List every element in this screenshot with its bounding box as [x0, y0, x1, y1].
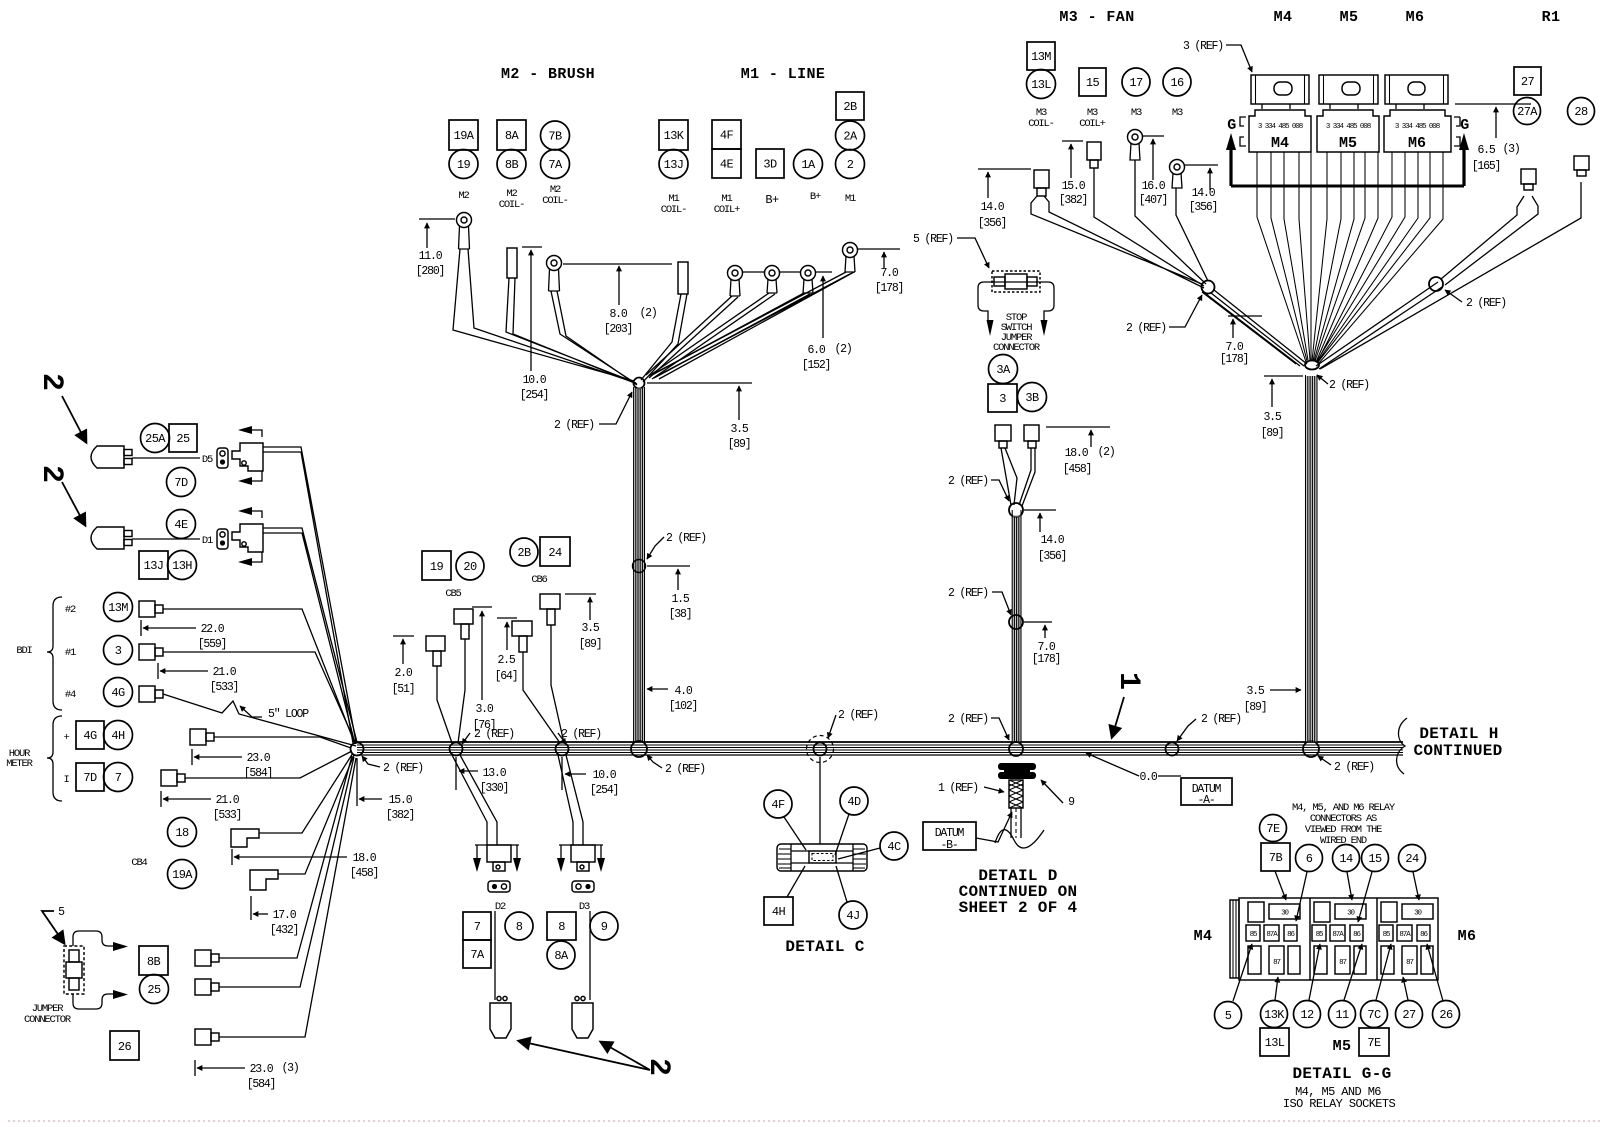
- svg-text:11.0: 11.0: [419, 250, 443, 263]
- svg-text:8: 8: [558, 920, 565, 934]
- svg-text:15: 15: [1086, 76, 1100, 90]
- svg-text:3 334 485 008: 3 334 485 008: [1258, 123, 1303, 131]
- svg-text:[102]: [102]: [669, 700, 698, 713]
- svg-text:2 (REF): 2 (REF): [1329, 379, 1369, 392]
- svg-text:7C: 7C: [1367, 1008, 1381, 1022]
- svg-text:21.0: 21.0: [213, 666, 237, 679]
- svg-text:CB6: CB6: [531, 574, 547, 586]
- svg-text:24: 24: [548, 546, 562, 560]
- svg-text:4G: 4G: [83, 729, 97, 743]
- svg-text:M4: M4: [1194, 928, 1213, 945]
- svg-text:#4: #4: [65, 689, 76, 701]
- svg-text:B+: B+: [810, 191, 821, 203]
- svg-text:M2: M2: [458, 190, 469, 202]
- svg-text:CONTINUED: CONTINUED: [1413, 742, 1502, 760]
- svg-text:2A: 2A: [843, 130, 858, 144]
- svg-text:15: 15: [1368, 852, 1382, 866]
- svg-text:M6: M6: [1406, 9, 1425, 26]
- svg-text:2: 2: [34, 465, 68, 483]
- svg-text:2 (REF): 2 (REF): [474, 728, 514, 741]
- svg-text:13L: 13L: [1031, 78, 1051, 92]
- svg-text:2 (REF): 2 (REF): [948, 475, 988, 488]
- svg-text:3 334 485 008: 3 334 485 008: [1395, 123, 1440, 131]
- svg-text:[254]: [254]: [590, 784, 619, 797]
- svg-text:[165]: [165]: [1472, 160, 1501, 173]
- svg-text:7: 7: [474, 920, 481, 934]
- svg-text:COIL-: COIL-: [661, 204, 687, 216]
- svg-text:10.0: 10.0: [523, 374, 547, 387]
- svg-text:3.5: 3.5: [1246, 685, 1264, 698]
- svg-text:SHEET 2 OF 4: SHEET 2 OF 4: [959, 899, 1078, 917]
- svg-text:5: 5: [1225, 1009, 1232, 1023]
- svg-text:25: 25: [176, 432, 190, 446]
- svg-text:20: 20: [463, 560, 477, 574]
- svg-text:4H: 4H: [772, 905, 786, 919]
- svg-text:DETAIL C: DETAIL C: [785, 938, 864, 956]
- svg-text:16.0: 16.0: [1142, 180, 1166, 193]
- svg-text:4G: 4G: [111, 686, 125, 700]
- svg-text:2: 2: [34, 373, 68, 391]
- svg-text:(3): (3): [1502, 143, 1519, 156]
- svg-text:12: 12: [1300, 1008, 1314, 1022]
- svg-text:17: 17: [1129, 76, 1143, 90]
- svg-text:COIL-: COIL-: [499, 199, 525, 211]
- svg-text:[356]: [356]: [1189, 201, 1218, 214]
- svg-text:13J: 13J: [144, 559, 164, 573]
- svg-text:8A: 8A: [554, 949, 569, 963]
- svg-text:4C: 4C: [887, 840, 901, 854]
- svg-text:[51]: [51]: [392, 683, 415, 696]
- svg-text:-A-: -A-: [1197, 794, 1214, 807]
- svg-text:15.0: 15.0: [389, 794, 413, 807]
- svg-text:2 (REF): 2 (REF): [554, 419, 594, 432]
- svg-text:M5: M5: [1339, 135, 1357, 152]
- svg-text:7D: 7D: [83, 771, 97, 785]
- svg-text:2: 2: [847, 158, 854, 172]
- svg-text:13J: 13J: [664, 158, 684, 172]
- svg-text:4F: 4F: [771, 798, 785, 812]
- svg-text:2 (REF): 2 (REF): [1466, 297, 1506, 310]
- svg-text:[458]: [458]: [1063, 463, 1092, 476]
- svg-text:13H: 13H: [172, 559, 192, 573]
- svg-text:3.5: 3.5: [730, 423, 748, 436]
- svg-text:[254]: [254]: [520, 389, 549, 402]
- svg-text:M4: M4: [1271, 135, 1289, 152]
- svg-text:M1 - LINE: M1 - LINE: [741, 66, 826, 83]
- svg-text:M4: M4: [1274, 9, 1293, 26]
- svg-text:3: 3: [999, 392, 1006, 406]
- svg-text:D1: D1: [202, 535, 213, 547]
- svg-text:I: I: [63, 774, 69, 786]
- svg-text:8B: 8B: [147, 955, 161, 969]
- svg-text:+: +: [63, 732, 69, 744]
- svg-text:DETAIL G-G: DETAIL G-G: [1292, 1065, 1391, 1083]
- svg-text:6.0: 6.0: [807, 344, 825, 357]
- svg-text:22.0: 22.0: [201, 623, 225, 636]
- svg-text:2 (REF): 2 (REF): [1201, 713, 1241, 726]
- svg-text:3D: 3D: [763, 158, 777, 172]
- svg-text:87: 87: [1339, 959, 1346, 967]
- svg-text:19: 19: [430, 560, 444, 574]
- svg-text:8A: 8A: [505, 129, 520, 143]
- svg-text:26: 26: [118, 1040, 132, 1054]
- svg-text:[356]: [356]: [978, 217, 1007, 230]
- svg-text:3B: 3B: [1025, 391, 1039, 405]
- svg-text:23.0: 23.0: [250, 1063, 274, 1076]
- svg-text:COIL+: COIL+: [714, 204, 740, 216]
- svg-text:2 (REF): 2 (REF): [948, 587, 988, 600]
- svg-text:19: 19: [457, 158, 471, 172]
- svg-text:28: 28: [1574, 105, 1588, 119]
- svg-text:(2): (2): [639, 307, 656, 320]
- svg-text:[203]: [203]: [604, 323, 633, 336]
- svg-text:3.5: 3.5: [1263, 411, 1281, 424]
- svg-text:D3: D3: [579, 901, 590, 913]
- svg-text:87: 87: [1406, 959, 1413, 967]
- svg-text:8B: 8B: [505, 158, 519, 172]
- svg-text:4.0: 4.0: [674, 685, 692, 698]
- svg-text:2 (REF): 2 (REF): [561, 728, 601, 741]
- svg-text:4D: 4D: [847, 795, 861, 809]
- svg-text:COIL-: COIL-: [1028, 118, 1054, 130]
- svg-text:4J: 4J: [846, 909, 859, 923]
- svg-text:CB5: CB5: [445, 588, 461, 600]
- svg-text:M3 - FAN: M3 - FAN: [1059, 9, 1134, 26]
- svg-text:1 (REF): 1 (REF): [938, 782, 978, 795]
- svg-text:1: 1: [1111, 672, 1145, 690]
- svg-text:D5: D5: [202, 454, 213, 466]
- svg-text:3A: 3A: [996, 363, 1011, 377]
- svg-text:M6: M6: [1458, 928, 1477, 945]
- svg-text:7B: 7B: [548, 130, 562, 144]
- svg-text:CB4: CB4: [131, 857, 147, 869]
- svg-text:19A: 19A: [454, 129, 475, 143]
- svg-text:18.0: 18.0: [353, 852, 377, 865]
- svg-text:M5: M5: [1333, 1038, 1352, 1055]
- svg-text:6: 6: [1306, 852, 1313, 866]
- svg-text:M2 - BRUSH: M2 - BRUSH: [501, 66, 595, 83]
- svg-text:3 334 485 008: 3 334 485 008: [1326, 123, 1371, 131]
- svg-text:ISO RELAY SOCKETS: ISO RELAY SOCKETS: [1283, 1097, 1396, 1111]
- svg-text:M3: M3: [1131, 107, 1142, 119]
- svg-text:[458]: [458]: [350, 867, 379, 880]
- svg-text:D2: D2: [495, 901, 506, 913]
- svg-text:27A: 27A: [1517, 105, 1538, 119]
- svg-text:17.0: 17.0: [273, 909, 297, 922]
- svg-text:[432]: [432]: [270, 924, 299, 937]
- svg-text:13K: 13K: [664, 129, 685, 143]
- svg-text:[89]: [89]: [1261, 427, 1284, 440]
- svg-text:4E: 4E: [174, 518, 188, 532]
- svg-text:8: 8: [516, 920, 523, 934]
- svg-text:[280]: [280]: [416, 265, 445, 278]
- svg-text:7A: 7A: [470, 948, 485, 962]
- svg-text:(3): (3): [281, 1062, 298, 1075]
- svg-text:7D: 7D: [174, 476, 188, 490]
- svg-text:2 (REF): 2 (REF): [383, 762, 423, 775]
- svg-text:87: 87: [1273, 959, 1280, 967]
- svg-text:3: 3: [115, 644, 122, 658]
- svg-text:10.0: 10.0: [593, 769, 617, 782]
- svg-text:(2): (2): [1097, 446, 1114, 459]
- svg-text:14.0: 14.0: [1192, 187, 1216, 200]
- svg-text:4F: 4F: [720, 129, 734, 143]
- svg-text:13M: 13M: [1031, 50, 1051, 64]
- svg-text:27: 27: [1521, 75, 1535, 89]
- svg-text:DETAIL H: DETAIL H: [1419, 725, 1498, 743]
- svg-text:87A: 87A: [1399, 931, 1411, 939]
- svg-text:B+: B+: [765, 193, 779, 207]
- svg-text:7E: 7E: [1266, 822, 1280, 836]
- svg-text:[533]: [533]: [210, 681, 239, 694]
- svg-text:[152]: [152]: [802, 359, 831, 372]
- svg-text:26: 26: [1439, 1008, 1453, 1022]
- svg-text:CONNECTOR: CONNECTOR: [24, 1014, 72, 1026]
- svg-text:2 (REF): 2 (REF): [948, 713, 988, 726]
- svg-text:#1: #1: [65, 647, 76, 659]
- svg-text:M6: M6: [1408, 135, 1426, 152]
- svg-text:[89]: [89]: [579, 638, 602, 651]
- svg-text:13K: 13K: [1264, 1008, 1285, 1022]
- svg-text:25: 25: [147, 983, 161, 997]
- svg-text:CONNECTOR: CONNECTOR: [993, 342, 1041, 354]
- svg-text:1A: 1A: [801, 158, 816, 172]
- svg-text:#2: #2: [65, 604, 76, 616]
- svg-text:2 (REF): 2 (REF): [1126, 322, 1166, 335]
- svg-text:(2): (2): [834, 343, 851, 356]
- svg-text:18.0: 18.0: [1065, 447, 1089, 460]
- svg-text:14.0: 14.0: [1041, 534, 1065, 547]
- svg-text:2.5: 2.5: [497, 654, 515, 667]
- svg-text:2.0: 2.0: [394, 667, 412, 680]
- svg-text:COIL+: COIL+: [1079, 118, 1105, 130]
- svg-text:2 (REF): 2 (REF): [1334, 761, 1374, 774]
- svg-text:18: 18: [175, 826, 189, 840]
- svg-text:27: 27: [1402, 1008, 1416, 1022]
- svg-text:7: 7: [115, 771, 122, 785]
- svg-text:M3: M3: [1172, 107, 1183, 119]
- svg-text:[559]: [559]: [198, 638, 227, 651]
- svg-text:G: G: [1460, 117, 1469, 134]
- svg-text:[382]: [382]: [386, 809, 415, 822]
- svg-text:1.5: 1.5: [671, 593, 689, 606]
- svg-text:87A: 87A: [1266, 931, 1278, 939]
- svg-text:BDI: BDI: [16, 645, 32, 657]
- svg-text:13L: 13L: [1265, 1036, 1285, 1050]
- svg-text:[64]: [64]: [495, 670, 518, 683]
- svg-text:[178]: [178]: [1032, 653, 1061, 666]
- svg-text:7A: 7A: [548, 158, 563, 172]
- svg-text:2 (REF): 2 (REF): [666, 532, 706, 545]
- svg-text:7.0: 7.0: [880, 267, 898, 280]
- svg-text:[584]: [584]: [247, 1078, 276, 1091]
- svg-text:14.0: 14.0: [981, 201, 1005, 214]
- svg-text:4E: 4E: [720, 158, 734, 172]
- svg-text:25A: 25A: [145, 432, 166, 446]
- svg-text:G: G: [1227, 117, 1236, 134]
- svg-text:7B: 7B: [1269, 851, 1283, 865]
- svg-text:[89]: [89]: [1244, 701, 1267, 714]
- svg-text:87A: 87A: [1332, 931, 1344, 939]
- svg-text:M5: M5: [1340, 9, 1359, 26]
- svg-text:3.0: 3.0: [475, 703, 493, 716]
- svg-text:[382]: [382]: [1059, 194, 1088, 207]
- svg-text:11: 11: [1335, 1008, 1349, 1022]
- svg-text:5 (REF): 5 (REF): [913, 233, 953, 246]
- svg-text:-B-: -B-: [940, 839, 957, 852]
- svg-text:19A: 19A: [172, 868, 193, 882]
- svg-text:16: 16: [1170, 76, 1184, 90]
- svg-text:M1: M1: [845, 193, 856, 205]
- svg-text:15.0: 15.0: [1062, 180, 1086, 193]
- svg-text:2 (REF): 2 (REF): [665, 763, 705, 776]
- svg-text:[533]: [533]: [213, 809, 242, 822]
- svg-text:2 (REF): 2 (REF): [838, 709, 878, 722]
- svg-text:8.0: 8.0: [609, 308, 627, 321]
- svg-text:7E: 7E: [1367, 1036, 1381, 1050]
- svg-text:6.5: 6.5: [1477, 144, 1495, 157]
- svg-text:13M: 13M: [108, 601, 128, 615]
- svg-text:14: 14: [1339, 852, 1353, 866]
- svg-text:23.0: 23.0: [247, 752, 271, 765]
- svg-text:2B: 2B: [843, 100, 857, 114]
- svg-text:R1: R1: [1542, 9, 1561, 26]
- svg-text:[407]: [407]: [1139, 194, 1168, 207]
- svg-text:0.0: 0.0: [1139, 771, 1157, 784]
- svg-text:3 (REF): 3 (REF): [1183, 40, 1223, 53]
- svg-text:[178]: [178]: [875, 282, 904, 295]
- svg-text:13.0: 13.0: [483, 767, 507, 780]
- svg-text:24: 24: [1405, 852, 1419, 866]
- svg-text:[89]: [89]: [728, 438, 751, 451]
- svg-text:COIL-: COIL-: [542, 195, 568, 207]
- svg-text:METER: METER: [6, 758, 33, 770]
- svg-text:4H: 4H: [111, 729, 125, 743]
- svg-text:[178]: [178]: [1220, 353, 1249, 366]
- svg-text:[330]: [330]: [480, 782, 509, 795]
- svg-text:[38]: [38]: [669, 608, 692, 621]
- svg-text:3.5: 3.5: [581, 622, 599, 635]
- svg-text:21.0: 21.0: [216, 794, 240, 807]
- svg-text:5" LOOP: 5" LOOP: [268, 708, 309, 721]
- svg-text:9: 9: [601, 920, 608, 934]
- svg-text:2B: 2B: [517, 546, 531, 560]
- svg-text:[356]: [356]: [1038, 550, 1067, 563]
